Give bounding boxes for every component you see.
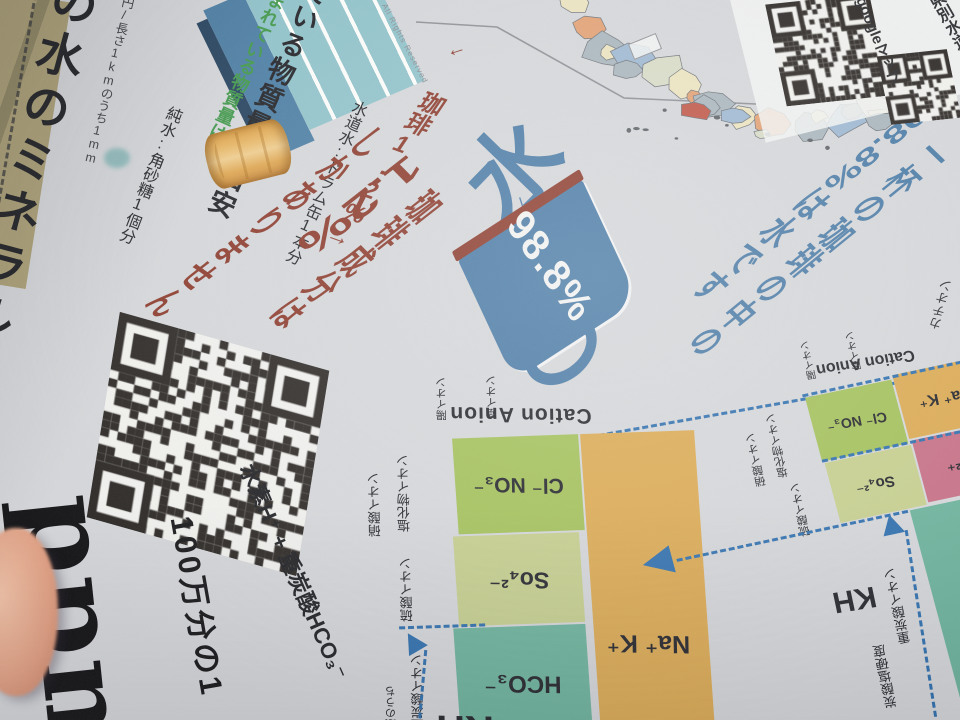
arrow-up-icon-2: [878, 512, 905, 536]
ion-table-header: Cation Anion: [449, 401, 592, 427]
cell-cl-no3: Cl⁻ NO₃⁻: [452, 434, 585, 534]
ion-table-right: 陽イオン 陰イオン Cation Anion Na⁺ K⁺ Cl⁻ NO₃⁻ M…: [742, 298, 960, 720]
cell-so4: So₄²⁻: [453, 532, 585, 626]
nitrate-label: 硝酸イオン: [367, 461, 382, 537]
carbonic-note: 炭酸のうち: [385, 661, 398, 720]
sulfate-label: 硫酸イオン: [399, 546, 414, 622]
kh-text-center: KH: [436, 706, 495, 720]
nitrate-label-2: 硝酸イオン: [744, 423, 769, 487]
ion-table-center: 陽イオン 陰イオン Cation Anion Na⁺ K⁺ Cl⁻ NO₃⁻ S…: [337, 354, 716, 720]
kh-text: KH: [829, 579, 879, 619]
poster-photo: の水のミネラルとローストレベル 円/長さ1kmのうち1mm ている物質量の目安 …: [0, 0, 960, 720]
chloride-label-2: 塩化物イオン: [764, 407, 790, 479]
chloride-label: 塩化物イオン: [397, 446, 412, 532]
sulfate-label-2: 硫酸イオン: [788, 473, 813, 537]
